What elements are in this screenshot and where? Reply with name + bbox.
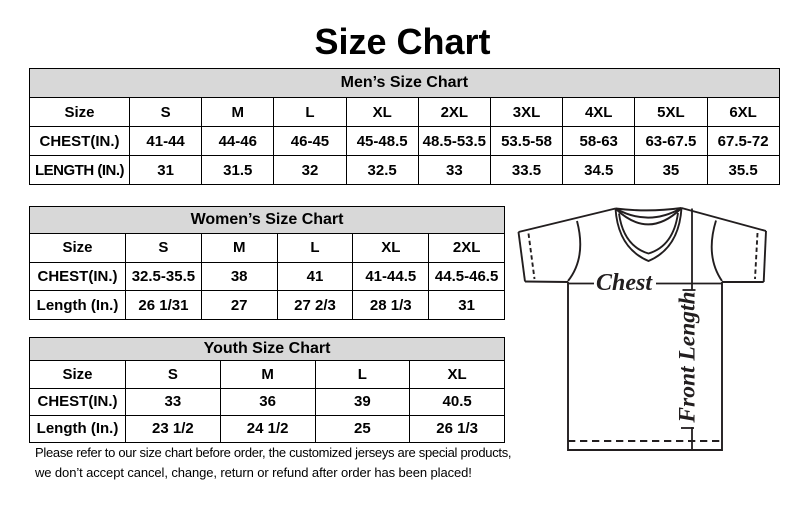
svg-text:Chest: Chest: [596, 270, 653, 296]
svg-text:Front Length: Front Length: [675, 291, 701, 423]
